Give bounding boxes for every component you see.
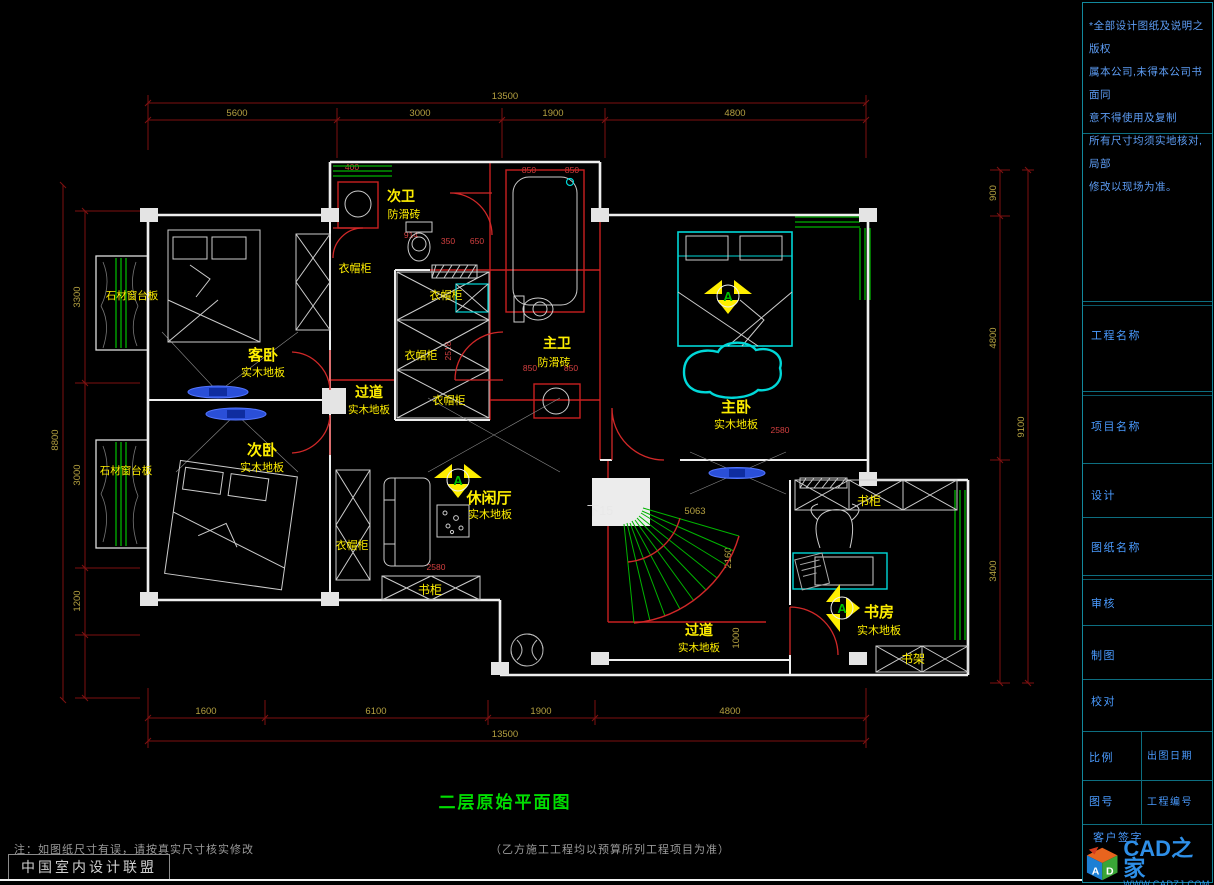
wardrobe-label: 衣帽柜 xyxy=(430,288,463,302)
room-ciwo-floor: 实木地板 xyxy=(240,460,284,474)
dim-top-2: 3000 xyxy=(409,108,430,119)
dim-right-1: 900 xyxy=(988,185,999,201)
note-line: 属本公司,未得本公司书面同 xyxy=(1089,61,1210,107)
floor-medallion xyxy=(511,634,543,666)
room-ciwei: 次卫 xyxy=(387,188,415,204)
divider xyxy=(1083,824,1212,825)
note-line: 意不得使用及复制 xyxy=(1089,107,1210,130)
fan-icon xyxy=(709,468,765,479)
divider xyxy=(1083,575,1212,576)
field-project-name: 工程名称 xyxy=(1091,327,1141,343)
room-ciwei-floor: 防滑砖 xyxy=(388,207,421,221)
dim-right-overall: 9100 xyxy=(1016,416,1027,437)
divider xyxy=(1083,780,1212,781)
dim-int-2: 2580 xyxy=(771,425,790,435)
note-line: 修改以现场为准。 xyxy=(1089,176,1210,199)
fixture-labels: 衣帽柜 衣帽柜 衣帽柜 衣帽柜 衣帽柜 书柜 书柜 书架 石材窗台板 石材窗台板 xyxy=(100,261,925,666)
divider xyxy=(1083,579,1212,580)
note-line: 所有尺寸均须实地核对,局部 xyxy=(1089,130,1210,176)
cube-letter-d: D xyxy=(1106,866,1114,878)
dim-right-3: 3400 xyxy=(988,560,999,581)
divider xyxy=(1083,305,1212,306)
marker-letter: A xyxy=(723,289,733,304)
copyright-notes: *全部设计图纸及说明之版权 属本公司,未得本公司书面同 意不得使用及复制 所有尺… xyxy=(1089,15,1210,199)
cadzj-logo[interactable]: A D CAD之家 WWW.CADZJ.COM xyxy=(1085,846,1211,882)
bookshelf-label: 书架 xyxy=(901,652,925,666)
dim-top-overall: 13500 xyxy=(492,91,518,102)
bathtub xyxy=(513,177,577,305)
cad-sheet: 13500 5600 3000 1900 4800 1600 6100 1900… xyxy=(0,0,1214,885)
basin-2 xyxy=(543,388,569,414)
divider xyxy=(1083,517,1212,518)
divider xyxy=(1083,679,1212,680)
room-guodao-2-floor: 实木地板 xyxy=(678,641,720,654)
fan-icon xyxy=(206,408,266,420)
field-item-name: 项目名称 xyxy=(1091,418,1141,434)
org-stamp: 中国室内设计联盟 xyxy=(8,854,170,880)
room-shufang-floor: 实木地板 xyxy=(857,623,901,637)
desk xyxy=(793,553,887,589)
room-labels: 客卧 实木地板 次卧 实木地板 次卫 防滑砖 主卫 防滑砖 主卧 实木地板 休闲… xyxy=(240,188,901,654)
field-check: 校对 xyxy=(1091,693,1116,709)
floor-plan-canvas: 13500 5600 3000 1900 4800 1600 6100 1900… xyxy=(0,0,1082,885)
room-xiuxianting-floor: 实木地板 xyxy=(468,507,512,521)
bed-second xyxy=(165,460,298,589)
logo-site: WWW.CADZJ.COM xyxy=(1123,879,1211,885)
toilet-1 xyxy=(406,222,432,261)
cube-letter-a: A xyxy=(1092,866,1100,878)
dim-corridor: 1000 xyxy=(731,627,742,648)
dim-left-overall: 8800 xyxy=(50,429,61,450)
dim-bottom-1: 1600 xyxy=(195,706,216,717)
elevation-marker: A xyxy=(826,584,860,632)
stairs-down-label: 下15 xyxy=(587,504,613,518)
divider xyxy=(1083,463,1212,464)
wardrobe-label: 衣帽柜 xyxy=(339,261,372,275)
dim-bottom-2: 6100 xyxy=(365,706,386,717)
divider xyxy=(1083,731,1212,732)
note-line: *全部设计图纸及说明之版权 xyxy=(1089,15,1210,61)
dim-right-2: 4800 xyxy=(988,327,999,348)
sofa xyxy=(384,478,430,566)
room-guodao-2: 过道 xyxy=(685,622,713,638)
sheet-bottom-rule xyxy=(0,879,1082,881)
furniture xyxy=(165,177,968,672)
room-zhuwo: 主卧 xyxy=(721,398,751,416)
toilet-2 xyxy=(514,296,553,322)
cyan-furniture xyxy=(456,179,887,590)
bed-guest xyxy=(168,230,260,342)
marker-letter: A xyxy=(837,601,847,616)
room-zhuwei-floor: 防滑砖 xyxy=(538,355,571,369)
room-guodao-1: 过道 xyxy=(355,384,383,400)
dim-bottom-4: 4800 xyxy=(719,706,740,717)
title-block: *全部设计图纸及说明之版权 属本公司,未得本公司书面同 意不得使用及复制 所有尺… xyxy=(1082,2,1213,883)
room-xiuxianting: 休闲厅 xyxy=(465,489,511,507)
field-plot-date: 出图日期 xyxy=(1147,747,1193,762)
divider xyxy=(1141,731,1142,824)
wardrobe-label: 衣帽柜 xyxy=(405,348,438,362)
marker-letter: A xyxy=(453,473,463,488)
divider xyxy=(1083,301,1212,302)
fan-icon xyxy=(188,386,248,398)
field-scale: 比例 xyxy=(1089,749,1114,765)
elevation-marker: A xyxy=(704,280,752,314)
dim-int-7: 850 xyxy=(523,363,537,373)
dim-int-11: 350 xyxy=(441,236,455,246)
computer xyxy=(795,553,830,590)
footer-note-2: （乙方施工工程均以预算所列工程项目为准） xyxy=(490,841,730,857)
dim-int-1: 2580 xyxy=(427,562,446,572)
room-guodao-1-floor: 实木地板 xyxy=(348,403,390,416)
divider xyxy=(1083,133,1212,134)
drawing-title: 二层原始平面图 xyxy=(439,792,572,812)
dim-int-10: 650 xyxy=(470,236,484,246)
room-zhuwei: 主卫 xyxy=(543,335,571,351)
divider xyxy=(1083,391,1212,392)
dim-top-3: 1900 xyxy=(542,108,563,119)
dim-top-4: 4800 xyxy=(724,108,745,119)
wardrobe-label: 衣帽柜 xyxy=(336,538,369,552)
field-review: 审核 xyxy=(1091,595,1116,611)
room-zhuwo-floor: 实木地板 xyxy=(714,417,758,431)
dim-left-2: 3000 xyxy=(72,464,83,485)
dim-stair-width: 5063 xyxy=(684,506,705,517)
rug-cloud xyxy=(684,343,781,398)
dim-left-3: 1200 xyxy=(72,590,83,611)
basin-1 xyxy=(345,191,371,217)
field-sheet-no: 图号 xyxy=(1089,793,1114,809)
field-sheet-name: 图纸名称 xyxy=(1091,539,1141,555)
room-ciwo: 次卧 xyxy=(247,441,277,459)
cadzj-cube-icon: A D xyxy=(1085,845,1119,883)
bookcase-label: 书柜 xyxy=(857,494,881,508)
dot-rug xyxy=(437,505,469,537)
divider xyxy=(1083,395,1212,396)
bookcase-label: 书柜 xyxy=(418,583,442,597)
dimension-text: 13500 5600 3000 1900 4800 1600 6100 1900… xyxy=(50,91,1027,740)
stone-sill-label: 石材窗台板 xyxy=(100,464,153,477)
stone-sill-label: 石材窗台板 xyxy=(106,289,159,302)
field-draft: 制图 xyxy=(1091,647,1116,663)
field-design: 设计 xyxy=(1091,487,1116,503)
logo-brand: CAD之家 xyxy=(1123,839,1211,879)
room-shufang: 书房 xyxy=(864,603,894,621)
field-project-no: 工程编号 xyxy=(1147,793,1193,808)
dim-left-1: 3300 xyxy=(72,286,83,307)
wardrobe-label: 衣帽柜 xyxy=(433,393,466,407)
dimension-lines xyxy=(60,95,1034,748)
dim-bottom-overall: 13500 xyxy=(492,729,518,740)
dim-top-1: 5600 xyxy=(226,108,247,119)
room-kewo: 客卧 xyxy=(247,346,278,364)
divider xyxy=(1083,625,1212,626)
dim-bottom-3: 1900 xyxy=(530,706,551,717)
room-kewo-floor: 实木地板 xyxy=(241,365,285,379)
